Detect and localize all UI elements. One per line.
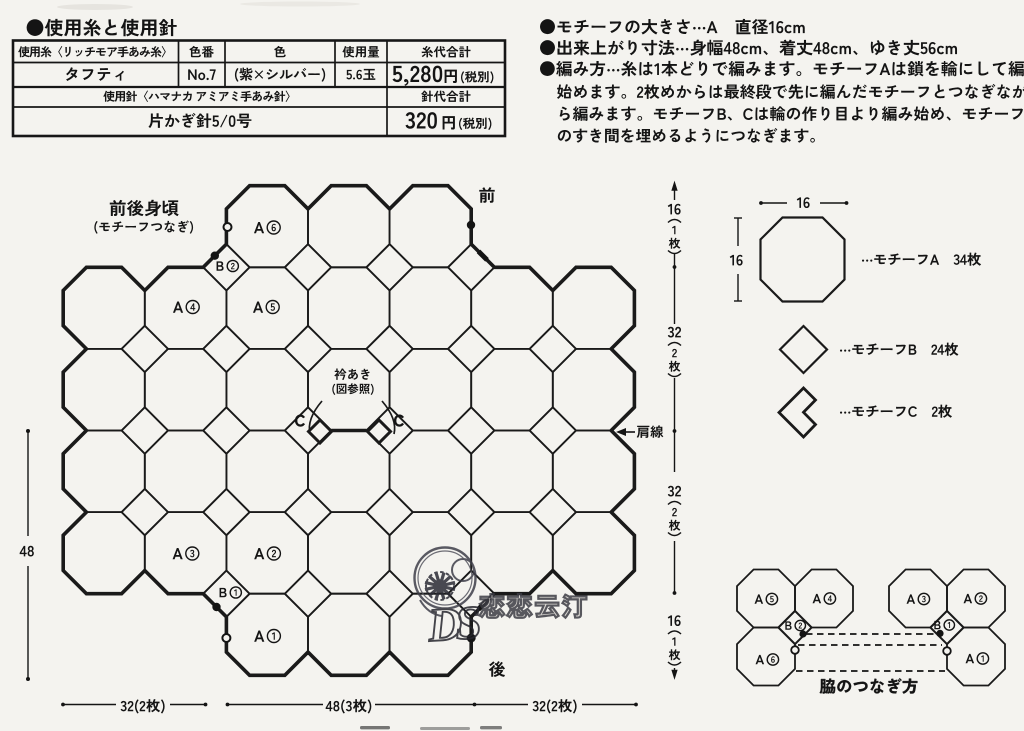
svg-text:DS: DS xyxy=(426,597,482,653)
